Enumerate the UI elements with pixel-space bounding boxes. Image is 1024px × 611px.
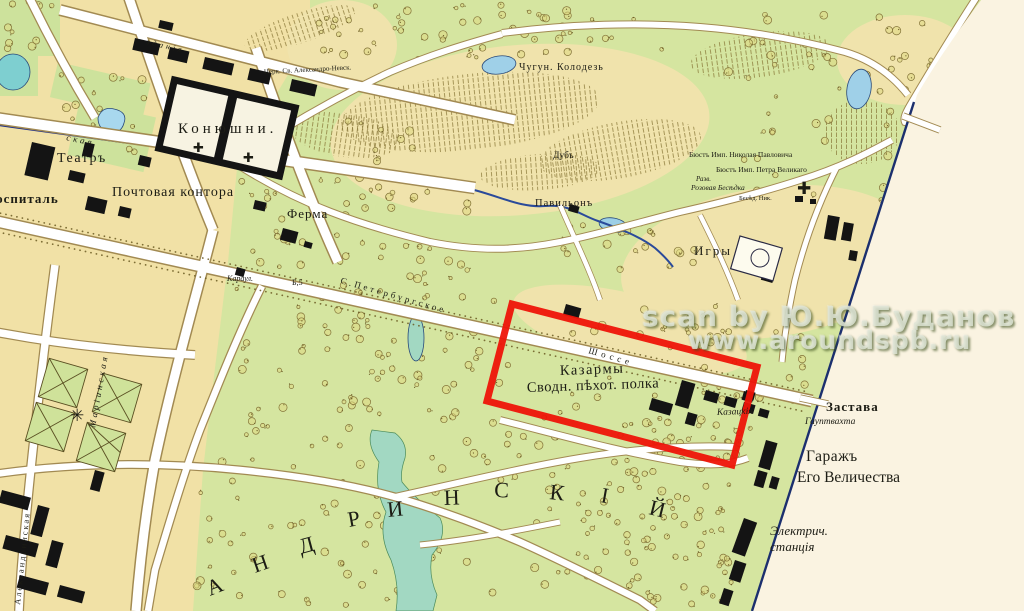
brush-dot bbox=[343, 399, 344, 400]
brush-dot bbox=[703, 419, 704, 420]
brush-dot bbox=[443, 35, 444, 36]
tree-symbol bbox=[790, 337, 794, 341]
tree-symbol bbox=[799, 364, 805, 370]
brush-dot bbox=[284, 216, 285, 217]
brush-dot bbox=[655, 431, 656, 432]
brush-dot bbox=[645, 547, 646, 548]
brush-dot bbox=[727, 454, 728, 455]
brush-dot bbox=[382, 131, 383, 132]
brush-dot bbox=[39, 3, 40, 4]
brush-dot bbox=[320, 20, 321, 21]
tree-symbol bbox=[631, 579, 635, 583]
brush-dot bbox=[292, 527, 293, 528]
brush-dot bbox=[386, 198, 387, 199]
brush-dot bbox=[441, 418, 442, 419]
brush-dot bbox=[735, 394, 736, 395]
brush-dot bbox=[623, 487, 624, 488]
brush-dot bbox=[761, 132, 762, 133]
brush-dot bbox=[63, 107, 64, 108]
tree-symbol bbox=[427, 409, 430, 412]
brush-dot bbox=[876, 19, 877, 20]
brush-dot bbox=[365, 323, 366, 324]
tree-symbol bbox=[625, 458, 629, 462]
tree-symbol bbox=[423, 282, 426, 285]
tree-symbol bbox=[97, 106, 103, 112]
label-games: Игры bbox=[694, 243, 732, 258]
brush-dot bbox=[250, 459, 251, 460]
brush-dot bbox=[687, 469, 688, 470]
label-theater: Театръ bbox=[57, 151, 107, 166]
church-cross-icon: ✚ bbox=[243, 151, 254, 166]
brush-dot bbox=[697, 511, 698, 512]
brush-dot bbox=[444, 352, 445, 353]
tree-symbol bbox=[356, 335, 363, 342]
tree-symbol bbox=[686, 437, 690, 441]
brush-dot bbox=[60, 75, 61, 76]
brush-dot bbox=[679, 253, 680, 254]
tree-symbol bbox=[379, 255, 384, 260]
brush-dot bbox=[389, 599, 390, 600]
tree-symbol bbox=[465, 268, 470, 273]
brush-dot bbox=[363, 122, 364, 123]
tree-symbol bbox=[321, 548, 329, 556]
tree-symbol bbox=[710, 529, 714, 533]
brush-dot bbox=[567, 251, 568, 252]
brush-dot bbox=[699, 514, 700, 515]
brush-dot bbox=[10, 24, 11, 25]
brush-dot bbox=[751, 44, 752, 45]
tree-symbol bbox=[375, 184, 381, 190]
brush-dot bbox=[536, 443, 537, 444]
tree-symbol bbox=[72, 101, 80, 109]
brush-dot bbox=[705, 530, 706, 531]
label-ruins: Разв. bbox=[695, 175, 711, 183]
tree-symbol bbox=[463, 437, 471, 445]
brush-dot bbox=[465, 6, 466, 7]
tree-symbol bbox=[373, 147, 378, 152]
tree-symbol bbox=[713, 422, 720, 429]
brush-dot bbox=[335, 505, 336, 506]
brush-dot bbox=[466, 56, 467, 57]
brush-dot bbox=[277, 266, 278, 267]
tree-symbol bbox=[798, 355, 805, 362]
label-iron-well: Чугун. Колодезь bbox=[519, 62, 604, 73]
tree-symbol bbox=[470, 449, 478, 457]
tree-symbol bbox=[602, 35, 608, 41]
brush-dot bbox=[421, 39, 422, 40]
brush-dot bbox=[364, 542, 365, 543]
brush-dot bbox=[869, 72, 870, 73]
tree-symbol bbox=[461, 4, 464, 7]
tree-symbol bbox=[362, 205, 369, 212]
brush-dot bbox=[628, 587, 629, 588]
tree-symbol bbox=[289, 384, 293, 388]
tree-symbol bbox=[697, 507, 703, 513]
tree-symbol bbox=[587, 37, 593, 43]
tree-symbol bbox=[360, 241, 364, 245]
brush-dot bbox=[200, 490, 201, 491]
brush-dot bbox=[595, 572, 596, 573]
brush-dot bbox=[442, 471, 443, 472]
brush-dot bbox=[654, 529, 655, 530]
tree-symbol bbox=[724, 556, 729, 561]
brush-dot bbox=[658, 418, 659, 419]
brush-dot bbox=[505, 434, 506, 435]
brush-dot bbox=[588, 558, 589, 559]
brush-dot bbox=[718, 561, 719, 562]
tree-symbol bbox=[325, 329, 331, 335]
brush-dot bbox=[766, 20, 767, 21]
tree-symbol bbox=[717, 563, 722, 568]
brush-dot bbox=[433, 455, 434, 456]
tree-symbol bbox=[442, 385, 450, 393]
brush-dot bbox=[723, 531, 724, 532]
tree-symbol bbox=[302, 344, 305, 347]
brush-dot bbox=[628, 544, 629, 545]
brush-dot bbox=[565, 468, 566, 469]
brush-dot bbox=[508, 446, 509, 447]
tree-symbol bbox=[697, 416, 705, 424]
brush-dot bbox=[375, 45, 376, 46]
tree-symbol bbox=[369, 188, 373, 192]
brush-dot bbox=[822, 143, 823, 144]
tree-symbol bbox=[663, 325, 666, 328]
tree-symbol bbox=[603, 549, 609, 555]
tree-symbol bbox=[409, 145, 415, 151]
brush-dot bbox=[583, 227, 584, 228]
brush-dot bbox=[240, 535, 241, 536]
tree-symbol bbox=[615, 520, 621, 526]
tree-symbol bbox=[391, 338, 396, 343]
brush-dot bbox=[627, 472, 628, 473]
label-cossack: Казацкія bbox=[716, 407, 753, 418]
brush-dot bbox=[662, 328, 663, 329]
label-oak: Дубъ bbox=[553, 150, 574, 161]
tree-symbol bbox=[617, 266, 623, 272]
label-arbor-nik: Бесѣд. Ник. bbox=[739, 195, 772, 202]
brush-dot bbox=[639, 578, 640, 579]
brush-dot bbox=[301, 524, 302, 525]
brush-dot bbox=[829, 122, 830, 123]
brush-dot bbox=[803, 385, 804, 386]
brush-dot bbox=[561, 413, 562, 414]
tree-symbol bbox=[479, 45, 486, 52]
brush-dot bbox=[838, 87, 839, 88]
brush-dot bbox=[414, 277, 415, 278]
tree-symbol bbox=[664, 534, 669, 539]
brush-dot bbox=[300, 348, 301, 349]
label-guardhouse: Гауптвахта bbox=[804, 417, 856, 427]
tree-symbol bbox=[517, 51, 524, 58]
tree-symbol bbox=[141, 95, 147, 101]
tree-symbol bbox=[820, 11, 828, 19]
brush-dot bbox=[270, 198, 271, 199]
tree-symbol bbox=[239, 178, 245, 184]
tree-symbol bbox=[505, 362, 510, 367]
brush-dot bbox=[411, 199, 412, 200]
brush-dot bbox=[543, 54, 544, 55]
tree-symbol bbox=[537, 12, 542, 17]
tree-symbol bbox=[504, 441, 510, 447]
tree-symbol bbox=[232, 570, 237, 575]
brush-dot bbox=[351, 398, 352, 399]
label-pavilion: Павильонъ bbox=[535, 198, 593, 209]
label-outpost: Застава bbox=[826, 399, 879, 414]
brush-dot bbox=[433, 557, 434, 558]
brush-dot bbox=[448, 276, 449, 277]
tree-symbol bbox=[330, 24, 335, 29]
brush-dot bbox=[496, 382, 497, 383]
brush-dot bbox=[586, 535, 587, 536]
brush-dot bbox=[672, 507, 673, 508]
tree-symbol bbox=[475, 56, 478, 59]
brush-dot bbox=[301, 320, 302, 321]
brush-dot bbox=[378, 513, 379, 514]
brush-dot bbox=[660, 491, 661, 492]
tree-symbol bbox=[59, 73, 63, 77]
brush-dot bbox=[264, 427, 265, 428]
brush-dot bbox=[551, 510, 552, 511]
brush-dot bbox=[249, 193, 250, 194]
tree-symbol bbox=[92, 92, 95, 95]
brush-dot bbox=[701, 347, 702, 348]
tree-symbol bbox=[441, 416, 448, 423]
brush-dot bbox=[35, 47, 36, 48]
brush-dot bbox=[390, 195, 391, 196]
tree-symbol bbox=[690, 259, 697, 266]
tree-symbol bbox=[10, 30, 14, 34]
brush-dot bbox=[716, 303, 717, 304]
tree-symbol bbox=[398, 376, 406, 384]
tree-symbol bbox=[650, 468, 656, 474]
tree-symbol bbox=[711, 436, 716, 441]
brush-dot bbox=[379, 415, 380, 416]
tree-symbol bbox=[642, 244, 649, 251]
tree-symbol bbox=[428, 247, 432, 251]
tree-symbol bbox=[323, 324, 327, 328]
brush-dot bbox=[668, 420, 669, 421]
tree-symbol bbox=[443, 348, 447, 352]
brush-dot bbox=[448, 389, 449, 390]
tree-symbol bbox=[337, 443, 342, 448]
brush-dot bbox=[400, 22, 401, 23]
brush-dot bbox=[687, 559, 688, 560]
brush-dot bbox=[445, 38, 446, 39]
brush-dot bbox=[376, 573, 377, 574]
label-verst-mark: Б,5 bbox=[292, 278, 303, 287]
brush-dot bbox=[576, 554, 577, 555]
brush-dot bbox=[684, 496, 685, 497]
tree-symbol bbox=[243, 340, 250, 347]
brush-dot bbox=[326, 19, 327, 20]
brush-dot bbox=[257, 430, 258, 431]
brush-dot bbox=[599, 396, 600, 397]
brush-dot bbox=[358, 31, 359, 32]
brush-dot bbox=[728, 564, 729, 565]
brush-dot bbox=[365, 322, 366, 323]
tree-symbol bbox=[390, 190, 395, 195]
tree-symbol bbox=[359, 122, 362, 125]
brush-dot bbox=[302, 262, 303, 263]
brush-dot bbox=[220, 530, 221, 531]
tree-symbol bbox=[33, 37, 40, 44]
brush-dot bbox=[887, 28, 888, 29]
tree-symbol bbox=[336, 32, 341, 37]
tree-symbol bbox=[703, 483, 709, 489]
tree-symbol bbox=[625, 540, 630, 545]
tree-symbol bbox=[229, 478, 235, 484]
tree-symbol bbox=[449, 277, 452, 280]
brush-dot bbox=[242, 183, 243, 184]
tree-symbol bbox=[362, 541, 368, 547]
brush-dot bbox=[282, 371, 283, 372]
brush-dot bbox=[568, 16, 569, 17]
brush-dot bbox=[644, 245, 645, 246]
brush-dot bbox=[283, 404, 284, 405]
tree-symbol bbox=[664, 419, 671, 426]
brush-dot bbox=[368, 52, 369, 53]
brush-dot bbox=[616, 462, 617, 463]
label-post-office: Почтовая контора bbox=[112, 185, 234, 200]
brush-dot bbox=[621, 267, 622, 268]
brush-dot bbox=[127, 151, 128, 152]
brush-dot bbox=[698, 551, 699, 552]
tree-symbol bbox=[490, 419, 497, 426]
tree-symbol bbox=[109, 73, 117, 81]
brush-dot bbox=[480, 48, 481, 49]
tree-symbol bbox=[748, 426, 752, 430]
brush-dot bbox=[607, 39, 608, 40]
brush-dot bbox=[652, 395, 653, 396]
brush-dot bbox=[647, 420, 648, 421]
brush-dot bbox=[335, 26, 336, 27]
tree-symbol bbox=[340, 50, 348, 58]
brush-dot bbox=[745, 75, 746, 76]
tree-symbol bbox=[630, 558, 637, 565]
brush-dot bbox=[774, 334, 775, 335]
brush-dot bbox=[254, 423, 255, 424]
brush-dot bbox=[632, 562, 633, 563]
monument-star-icon: ✳ bbox=[70, 406, 84, 426]
brush-dot bbox=[377, 354, 378, 355]
brush-dot bbox=[342, 410, 343, 411]
tree-symbol bbox=[343, 335, 349, 341]
brush-dot bbox=[477, 358, 478, 359]
brush-dot bbox=[392, 340, 393, 341]
tree-symbol bbox=[694, 513, 702, 521]
brush-dot bbox=[883, 185, 884, 186]
brush-dot bbox=[345, 52, 346, 53]
brush-dot bbox=[347, 22, 348, 23]
tree-symbol bbox=[697, 423, 702, 428]
brush-dot bbox=[146, 97, 147, 98]
brush-dot bbox=[525, 439, 526, 440]
brush-dot bbox=[707, 483, 708, 484]
tree-symbol bbox=[809, 64, 814, 69]
label-bust-nicholas: Бюстъ Имп. Николая Павловича bbox=[689, 150, 793, 159]
brush-dot bbox=[887, 125, 888, 126]
tree-symbol bbox=[417, 256, 425, 264]
brush-dot bbox=[417, 372, 418, 373]
tree-symbol bbox=[398, 28, 404, 34]
brush-dot bbox=[654, 233, 655, 234]
tree-symbol bbox=[594, 394, 601, 401]
tree-symbol bbox=[633, 249, 637, 253]
tree-symbol bbox=[321, 47, 327, 53]
brush-dot bbox=[654, 324, 655, 325]
label-rose-arbor: Розовая Бесѣдка bbox=[690, 183, 745, 192]
brush-dot bbox=[327, 550, 328, 551]
tree-symbol bbox=[901, 52, 908, 59]
brush-dot bbox=[718, 389, 719, 390]
tree-symbol bbox=[331, 500, 338, 507]
brush-dot bbox=[673, 557, 674, 558]
tree-symbol bbox=[199, 491, 203, 495]
brush-dot bbox=[380, 373, 381, 374]
brush-dot bbox=[371, 192, 372, 193]
tree-symbol bbox=[564, 48, 571, 55]
brush-dot bbox=[393, 365, 394, 366]
church-cross-icon: ✚ bbox=[193, 141, 204, 156]
tree-symbol bbox=[721, 329, 725, 333]
brush-dot bbox=[334, 234, 335, 235]
tree-symbol bbox=[564, 251, 570, 257]
brush-dot bbox=[10, 34, 11, 35]
brush-dot bbox=[812, 69, 813, 70]
tree-symbol bbox=[363, 398, 371, 406]
tree-symbol bbox=[297, 305, 300, 308]
tree-symbol bbox=[451, 381, 457, 387]
tree-symbol bbox=[686, 331, 690, 335]
brush-dot bbox=[456, 384, 457, 385]
tree-symbol bbox=[335, 306, 342, 313]
tree-symbol bbox=[630, 468, 638, 476]
tree-symbol bbox=[499, 11, 506, 18]
brush-dot bbox=[476, 350, 477, 351]
brush-dot bbox=[898, 29, 899, 30]
tree-symbol bbox=[299, 520, 305, 526]
brush-dot bbox=[722, 559, 723, 560]
tree-symbol bbox=[445, 257, 453, 265]
tree-symbol bbox=[697, 541, 705, 549]
tree-symbol bbox=[356, 460, 364, 468]
brush-dot bbox=[310, 602, 311, 603]
brush-dot bbox=[237, 289, 238, 290]
tree-symbol bbox=[891, 56, 895, 60]
brush-dot bbox=[825, 54, 826, 55]
brush-dot bbox=[729, 485, 730, 486]
brush-dot bbox=[511, 479, 512, 480]
brush-dot bbox=[11, 43, 12, 44]
label-power-2: станція bbox=[770, 539, 814, 554]
brush-dot bbox=[652, 468, 653, 469]
tree-symbol bbox=[253, 428, 260, 435]
tree-symbol bbox=[373, 570, 377, 574]
brush-dot bbox=[677, 517, 678, 518]
tree-symbol bbox=[683, 556, 688, 561]
tree-symbol bbox=[647, 229, 652, 234]
brush-dot bbox=[671, 435, 672, 436]
brush-dot bbox=[490, 591, 491, 592]
brush-dot bbox=[408, 244, 409, 245]
brush-dot bbox=[766, 15, 767, 16]
tree-symbol bbox=[675, 494, 681, 500]
tree-symbol bbox=[555, 35, 563, 43]
brush-dot bbox=[791, 376, 792, 377]
brush-dot bbox=[646, 541, 647, 542]
brush-dot bbox=[880, 200, 881, 201]
map-canvas: ✳ bbox=[0, 0, 1024, 611]
